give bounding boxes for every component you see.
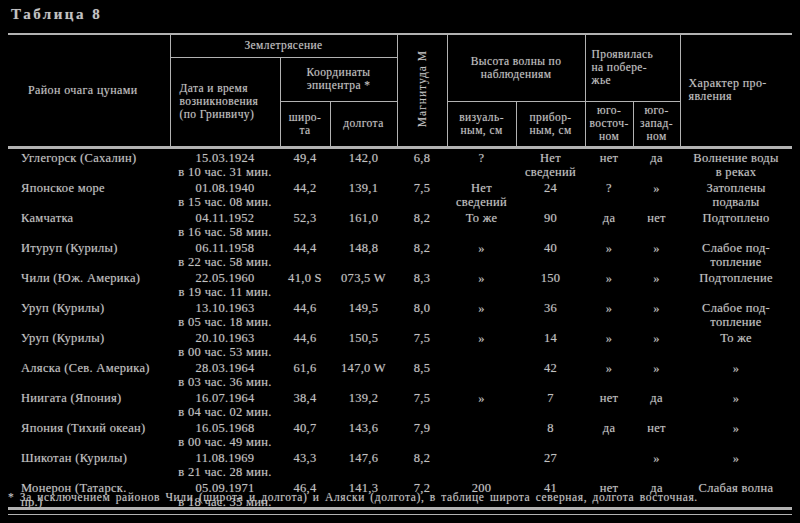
table-row: Аляска (Сев. Америка)28.03.1964 в 03 час… <box>8 359 792 389</box>
datetime-cell: 28.03.1964 в 03 час. 36 мин. <box>170 359 280 389</box>
southeast-coast-cell: ? <box>585 179 633 209</box>
datetime-cell: 22.05.1960 в 19 час. 11 мин. <box>170 269 280 299</box>
datetime-cell: 04.11.1952 в 16 час. 58 мин. <box>170 209 280 239</box>
magnitude-cell: 8,2 <box>397 239 447 269</box>
latitude-cell: 41,0 S <box>280 269 330 299</box>
visual-height-cell: » <box>447 269 516 299</box>
longitude-cell: 139,1 <box>330 179 397 209</box>
magnitude-cell: 8,3 <box>397 269 447 299</box>
longitude-cell: 149,5 <box>330 299 397 329</box>
datetime-cell: 16.05.1968 в 00 час. 49 мин. <box>170 419 280 449</box>
instrumental-height-cell: 14 <box>516 329 585 359</box>
visual-height-cell: Нет сведений <box>447 179 516 209</box>
southeast-coast-cell: нет <box>585 147 633 179</box>
southwest-coast-cell: нет <box>633 419 680 449</box>
character-cell: » <box>680 389 792 419</box>
magnitude-cell: 7,5 <box>397 179 447 209</box>
longitude-cell: 150,5 <box>330 329 397 359</box>
southwest-coast-cell: нет <box>633 209 680 239</box>
scanned-document-page: Таблица 8 Район очага цунами Землетрясен… <box>0 0 800 523</box>
southwest-coast-cell: » <box>633 299 680 329</box>
table-row: Уруп (Курилы)20.10.1963 в 00 час. 53 мин… <box>8 329 792 359</box>
southwest-coast-cell: » <box>633 239 680 269</box>
character-cell: То же <box>680 329 792 359</box>
table-row: Японское море01.08.1940 в 15 час. 08 мин… <box>8 179 792 209</box>
visual-height-cell: » <box>447 239 516 269</box>
col-header-southeast-coast: юго- восточ- ном <box>585 101 633 147</box>
table-row: Шикотан (Курилы)11.08.1969 в 21 час. 28 … <box>8 449 792 479</box>
character-cell: Затоплены подвалы <box>680 179 792 209</box>
table-header: Район очага цунами Землетрясение Магниту… <box>8 34 792 147</box>
character-cell: Подтоплено <box>680 209 792 239</box>
table-row: Япония (Тихий океан)16.05.1968 в 00 час.… <box>8 419 792 449</box>
table-row: Чили (Юж. Америка)22.05.1960 в 19 час. 1… <box>8 269 792 299</box>
region-cell: Уруп (Курилы) <box>8 299 170 329</box>
magnitude-cell: 8,5 <box>397 359 447 389</box>
latitude-cell: 43,3 <box>280 449 330 479</box>
instrumental-height-cell: 24 <box>516 179 585 209</box>
longitude-cell: 161,0 <box>330 209 397 239</box>
col-group-earthquake: Землетрясение <box>170 34 397 57</box>
latitude-cell: 44,2 <box>280 179 330 209</box>
table-body: Углегорск (Сахалин)15.03.1924 в 10 час. … <box>8 147 792 515</box>
footnote: * За исключением районов Чили (широта и … <box>8 489 792 510</box>
longitude-cell: 143,6 <box>330 419 397 449</box>
instrumental-height-cell: Нет сведений <box>516 147 585 179</box>
latitude-cell: 52,3 <box>280 209 330 239</box>
col-group-epicenter-coordinates: Координаты эпицентра * <box>280 57 397 101</box>
table-row: Уруп (Курилы)13.10.1963 в 05 час. 18 мин… <box>8 299 792 329</box>
col-header-character: Характер про- явления <box>680 34 792 147</box>
southwest-coast-cell: » <box>633 179 680 209</box>
southeast-coast-cell: нет <box>585 389 633 419</box>
col-header-region: Район очага цунами <box>8 34 170 147</box>
table-row: Ниигата (Япония)16.07.1964 в 04 час. 02 … <box>8 389 792 419</box>
longitude-cell: 148,8 <box>330 239 397 269</box>
visual-height-cell: » <box>447 329 516 359</box>
southwest-coast-cell: » <box>633 269 680 299</box>
visual-height-cell: » <box>447 389 516 419</box>
visual-height-cell <box>447 419 516 449</box>
magnitude-vertical-label: Магнитуда М <box>416 50 429 127</box>
southeast-coast-cell: » <box>585 239 633 269</box>
latitude-cell: 49,4 <box>280 147 330 179</box>
magnitude-cell: 8,0 <box>397 299 447 329</box>
southwest-coast-cell: » <box>633 449 680 479</box>
region-cell: Камчатка <box>8 209 170 239</box>
longitude-cell: 073,5 W <box>330 269 397 299</box>
instrumental-height-cell: 7 <box>516 389 585 419</box>
instrumental-height-cell: 40 <box>516 239 585 269</box>
longitude-cell: 142,0 <box>330 147 397 179</box>
region-cell: Уруп (Курилы) <box>8 329 170 359</box>
longitude-cell: 147,0 W <box>330 359 397 389</box>
southeast-coast-cell: да <box>585 419 633 449</box>
col-header-southwest-coast: юго- запад- ном <box>633 101 680 147</box>
datetime-cell: 11.08.1969 в 21 час. 28 мин. <box>170 449 280 479</box>
character-cell: » <box>680 449 792 479</box>
region-cell: Шикотан (Курилы) <box>8 449 170 479</box>
visual-height-cell <box>447 449 516 479</box>
character-cell: Волнение воды в реках <box>680 147 792 179</box>
latitude-cell: 44,4 <box>280 239 330 269</box>
visual-height-cell: То же <box>447 209 516 239</box>
southeast-coast-cell: » <box>585 329 633 359</box>
latitude-cell: 44,6 <box>280 329 330 359</box>
tsunami-observations-table: Район очага цунами Землетрясение Магниту… <box>8 33 792 515</box>
southeast-coast-cell: » <box>585 269 633 299</box>
southeast-coast-cell <box>585 449 633 479</box>
col-header-visual-height: визуаль- ным, см <box>447 101 516 147</box>
character-cell: Подтопление <box>680 269 792 299</box>
instrumental-height-cell: 27 <box>516 449 585 479</box>
datetime-cell: 15.03.1924 в 10 час. 31 мин. <box>170 147 280 179</box>
instrumental-height-cell: 90 <box>516 209 585 239</box>
southwest-coast-cell: » <box>633 359 680 389</box>
magnitude-cell: 8,2 <box>397 449 447 479</box>
region-cell: Япония (Тихий океан) <box>8 419 170 449</box>
visual-height-cell: ? <box>447 147 516 179</box>
visual-height-cell <box>447 359 516 389</box>
instrumental-height-cell: 42 <box>516 359 585 389</box>
region-cell: Итуруп (Курилы) <box>8 239 170 269</box>
col-header-instrumental-height: прибор- ным, см <box>516 101 585 147</box>
southeast-coast-cell: да <box>585 209 633 239</box>
character-cell: Слабое под- топление <box>680 239 792 269</box>
instrumental-height-cell: 8 <box>516 419 585 449</box>
southwest-coast-cell: да <box>633 389 680 419</box>
magnitude-cell: 8,2 <box>397 209 447 239</box>
character-cell: » <box>680 359 792 389</box>
col-header-magnitude: Магнитуда М <box>397 34 447 147</box>
southwest-coast-cell: да <box>633 147 680 179</box>
southeast-coast-cell: » <box>585 359 633 389</box>
region-cell: Чили (Юж. Америка) <box>8 269 170 299</box>
col-header-longitude: долгота <box>330 101 397 147</box>
datetime-cell: 13.10.1963 в 05 час. 18 мин. <box>170 299 280 329</box>
instrumental-height-cell: 150 <box>516 269 585 299</box>
magnitude-cell: 6,8 <box>397 147 447 179</box>
datetime-cell: 20.10.1963 в 00 час. 53 мин. <box>170 329 280 359</box>
region-cell: Ниигата (Япония) <box>8 389 170 419</box>
region-cell: Углегорск (Сахалин) <box>8 147 170 179</box>
character-cell: Слабое под- топление <box>680 299 792 329</box>
character-cell: » <box>680 419 792 449</box>
southwest-coast-cell: » <box>633 329 680 359</box>
datetime-cell: 06.11.1958 в 22 час. 58 мин. <box>170 239 280 269</box>
longitude-cell: 139,2 <box>330 389 397 419</box>
table-row: Итуруп (Курилы)06.11.1958 в 22 час. 58 м… <box>8 239 792 269</box>
southeast-coast-cell: » <box>585 299 633 329</box>
col-header-datetime: Дата и время возникновения (по Гринвичу) <box>170 57 280 147</box>
table-caption: Таблица 8 <box>11 6 102 23</box>
datetime-cell: 16.07.1964 в 04 час. 02 мин. <box>170 389 280 419</box>
longitude-cell: 147,6 <box>330 449 397 479</box>
region-cell: Аляска (Сев. Америка) <box>8 359 170 389</box>
magnitude-cell: 7,5 <box>397 329 447 359</box>
table-row: Камчатка04.11.1952 в 16 час. 58 мин.52,3… <box>8 209 792 239</box>
latitude-cell: 38,4 <box>280 389 330 419</box>
magnitude-cell: 7,5 <box>397 389 447 419</box>
latitude-cell: 44,6 <box>280 299 330 329</box>
col-group-coast-manifestation: Проявилась на побере- жье <box>585 34 680 101</box>
col-header-latitude: широ- та <box>280 101 330 147</box>
latitude-cell: 61,6 <box>280 359 330 389</box>
table-row: Углегорск (Сахалин)15.03.1924 в 10 час. … <box>8 147 792 179</box>
visual-height-cell: » <box>447 299 516 329</box>
latitude-cell: 40,7 <box>280 419 330 449</box>
col-group-wave-height: Высота волны по наблюдениям <box>447 34 585 101</box>
instrumental-height-cell: 36 <box>516 299 585 329</box>
magnitude-cell: 7,9 <box>397 419 447 449</box>
region-cell: Японское море <box>8 179 170 209</box>
datetime-cell: 01.08.1940 в 15 час. 08 мин. <box>170 179 280 209</box>
